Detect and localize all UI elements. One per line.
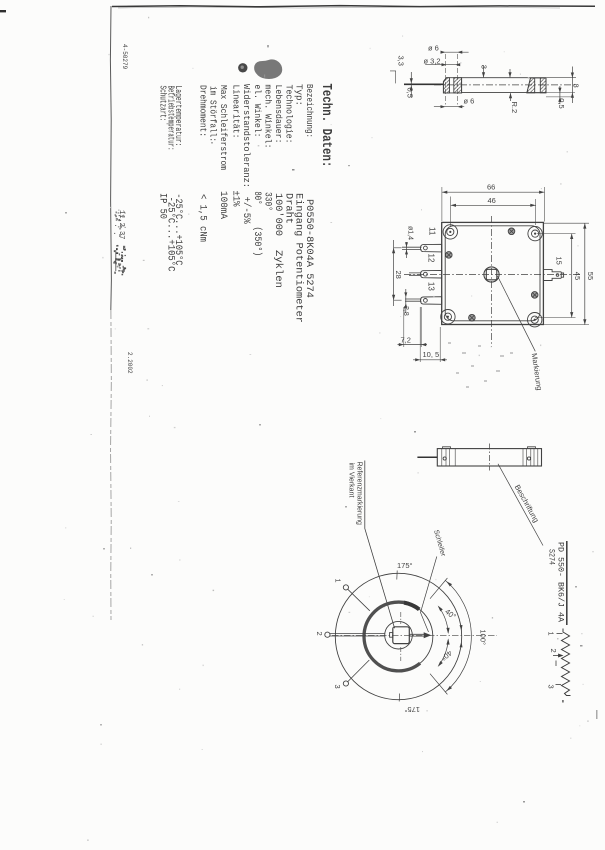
svg-text:1: 1: [334, 579, 343, 583]
svg-text:(350°): (350°): [252, 226, 263, 256]
svg-text:3: 3: [547, 685, 556, 689]
svg-text:7,2: 7,2: [401, 336, 411, 345]
svg-text:Schutzart:: Schutzart:: [158, 86, 169, 122]
svg-text:1: 1: [547, 632, 556, 636]
svg-text:175°: 175°: [404, 705, 420, 714]
svg-text:P0550-8K04A 5274: P0550-8K04A 5274: [304, 199, 315, 298]
svg-text:100mA: 100mA: [218, 191, 229, 219]
svg-text:Draht: Draht: [284, 193, 295, 224]
svg-text:ø 3,2: ø 3,2: [424, 56, 441, 65]
svg-text:2.2002: 2.2002: [126, 352, 133, 374]
svg-text:Beschriftung: Beschriftung: [513, 483, 541, 524]
svg-text:3: 3: [480, 65, 489, 69]
svg-text:R.2: R.2: [510, 102, 519, 114]
svg-text:28: 28: [394, 271, 403, 279]
svg-text:175°: 175°: [397, 561, 413, 570]
svg-text:80°: 80°: [252, 191, 263, 204]
svg-text:Bezeichnung:: Bezeichnung:: [304, 84, 315, 138]
svg-text:im Vierkant: im Vierkant: [348, 463, 355, 498]
svg-text:330°: 330°: [262, 192, 273, 211]
svg-text:3,3: 3,3: [397, 56, 406, 66]
svg-text:46: 46: [488, 196, 496, 205]
svg-text:el. Winkel:: el. Winkel:: [252, 85, 263, 138]
svg-text:45: 45: [573, 272, 582, 280]
svg-text:8: 8: [572, 84, 581, 88]
svg-text:< 1,5 cNm: < 1,5 cNm: [198, 194, 209, 242]
svg-text:mech. Winkel:: mech. Winkel:: [262, 85, 273, 149]
svg-text:S274: S274: [547, 549, 557, 565]
svg-text:ø 6: ø 6: [428, 44, 439, 53]
svg-text:40°: 40°: [439, 648, 453, 662]
svg-text:2: 2: [549, 649, 558, 653]
svg-text:Techn. Daten:: Techn. Daten:: [318, 83, 333, 167]
svg-text:11: 11: [428, 227, 437, 236]
svg-text:10, 5: 10, 5: [423, 350, 440, 359]
svg-text:Lebensdauer:: Lebensdauer:: [273, 85, 284, 144]
svg-text:0,5: 0,5: [557, 98, 566, 108]
svg-text:IP 50: IP 50: [158, 193, 169, 219]
svg-text:55: 55: [586, 272, 595, 280]
svg-text:3: 3: [333, 685, 342, 689]
svg-text:Zyklen: Zyklen: [273, 250, 284, 288]
svg-text:+/-5%: +/-5%: [241, 197, 252, 224]
svg-text:Max Schleiferstrom: Max Schleiferstrom: [218, 85, 229, 170]
svg-text:Drehmoment:: Drehmoment:: [198, 85, 209, 137]
svg-text:66: 66: [487, 183, 495, 192]
svg-text:Referenzmarkierung: Referenzmarkierung: [356, 462, 363, 526]
svg-text:ø1,4: ø1,4: [407, 226, 414, 240]
svg-text:Schleifer: Schleifer: [432, 529, 446, 558]
svg-text:2: 2: [315, 632, 324, 636]
svg-text:12: 12: [427, 254, 436, 263]
svg-text:Widerstandstoleranz:: Widerstandstoleranz:: [241, 84, 252, 188]
svg-text:13: 13: [427, 282, 436, 291]
svg-text:4-50279: 4-50279: [121, 44, 128, 70]
svg-text:15: 15: [555, 257, 564, 265]
svg-text:ø 6: ø 6: [464, 97, 475, 106]
svg-text:±1%: ±1%: [231, 191, 242, 207]
svg-text:0,5: 0,5: [406, 88, 415, 98]
svg-text:100°: 100°: [479, 630, 488, 646]
svg-text:100'000: 100'000: [273, 193, 284, 236]
svg-text:Technologie:: Technologie:: [284, 85, 295, 144]
svg-text:Markierung: Markierung: [530, 353, 544, 391]
svg-text:2,8: 2,8: [402, 306, 409, 316]
svg-text:Linearität:: Linearität:: [231, 85, 242, 139]
